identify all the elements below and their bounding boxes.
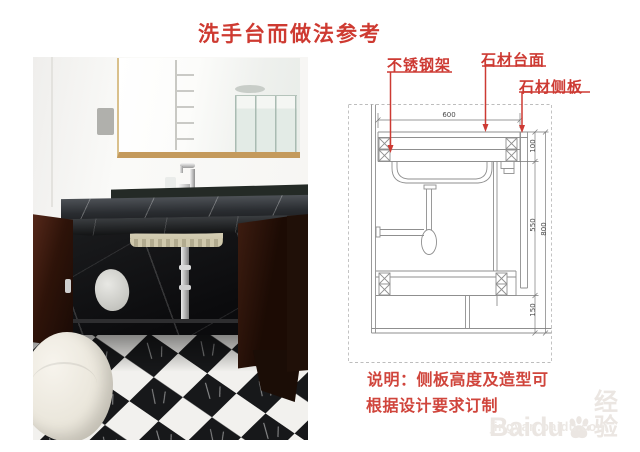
faucet-tip bbox=[180, 166, 183, 173]
dim-width-600: 600 bbox=[435, 110, 463, 120]
wall-corner-line bbox=[51, 57, 53, 207]
dim-top-100: 100 bbox=[528, 134, 538, 158]
ceiling-vent-reflection bbox=[235, 85, 265, 93]
steel-tube-sections bbox=[379, 138, 517, 295]
page-title: 洗手台而做法参考 bbox=[150, 18, 430, 48]
mirror bbox=[117, 58, 300, 158]
label-stone-side: 石材侧板 bbox=[519, 76, 583, 97]
leader-arrowheads bbox=[388, 124, 526, 153]
counter-section bbox=[376, 132, 528, 329]
cabinet-side-panel bbox=[287, 214, 308, 372]
watermark-url: jingyan.baidu.com bbox=[490, 420, 608, 434]
dashed-boundary bbox=[349, 105, 552, 363]
light-switch bbox=[97, 108, 114, 135]
pipe-joint bbox=[179, 265, 191, 270]
door-hinge bbox=[65, 279, 71, 293]
bathroom-photo bbox=[33, 57, 308, 440]
note-line-2: 根据设计要求订制 bbox=[366, 392, 498, 416]
washbasin-ribbed-edge bbox=[130, 239, 223, 247]
dim-overall-800: 800 bbox=[539, 217, 549, 241]
pipe-joint bbox=[179, 285, 191, 290]
toilet-lid-seam bbox=[33, 362, 97, 406]
label-steel-frame: 不锈钢架 bbox=[387, 54, 451, 75]
towel-rack-reflection bbox=[175, 60, 194, 150]
dim-side-550: 550 bbox=[528, 213, 538, 237]
label-stone-top: 石材台面 bbox=[481, 49, 545, 70]
dim-base-150: 150 bbox=[528, 298, 538, 322]
wall-floor-lines bbox=[372, 105, 552, 334]
note-line-1: 说明：侧板高度及造型可 bbox=[367, 366, 549, 390]
shower-enclosure-reflection bbox=[235, 95, 297, 158]
cabinet-door-right bbox=[238, 217, 287, 369]
dimension-lines bbox=[376, 113, 549, 336]
